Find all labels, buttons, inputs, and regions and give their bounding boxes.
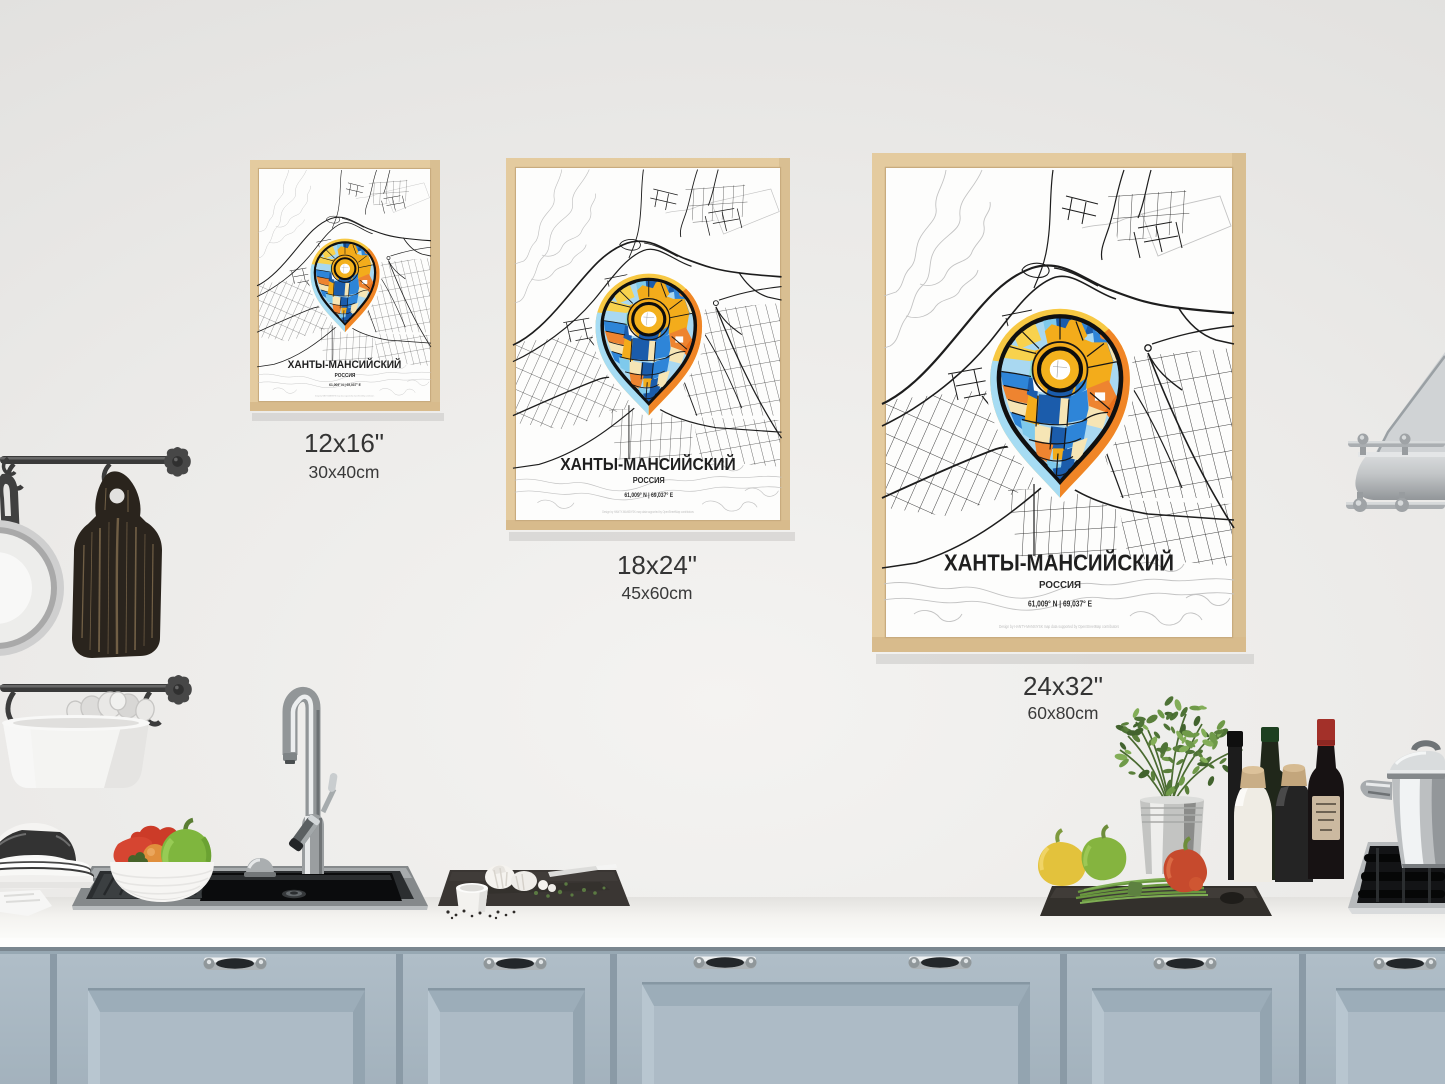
svg-text:30x40cm: 30x40cm (308, 462, 379, 482)
svg-text:18x24": 18x24" (617, 550, 697, 580)
svg-text:12x16": 12x16" (304, 428, 384, 458)
svg-text:60x80cm: 60x80cm (1027, 703, 1098, 723)
svg-text:24x32": 24x32" (1023, 671, 1103, 701)
svg-text:45x60cm: 45x60cm (621, 583, 692, 603)
